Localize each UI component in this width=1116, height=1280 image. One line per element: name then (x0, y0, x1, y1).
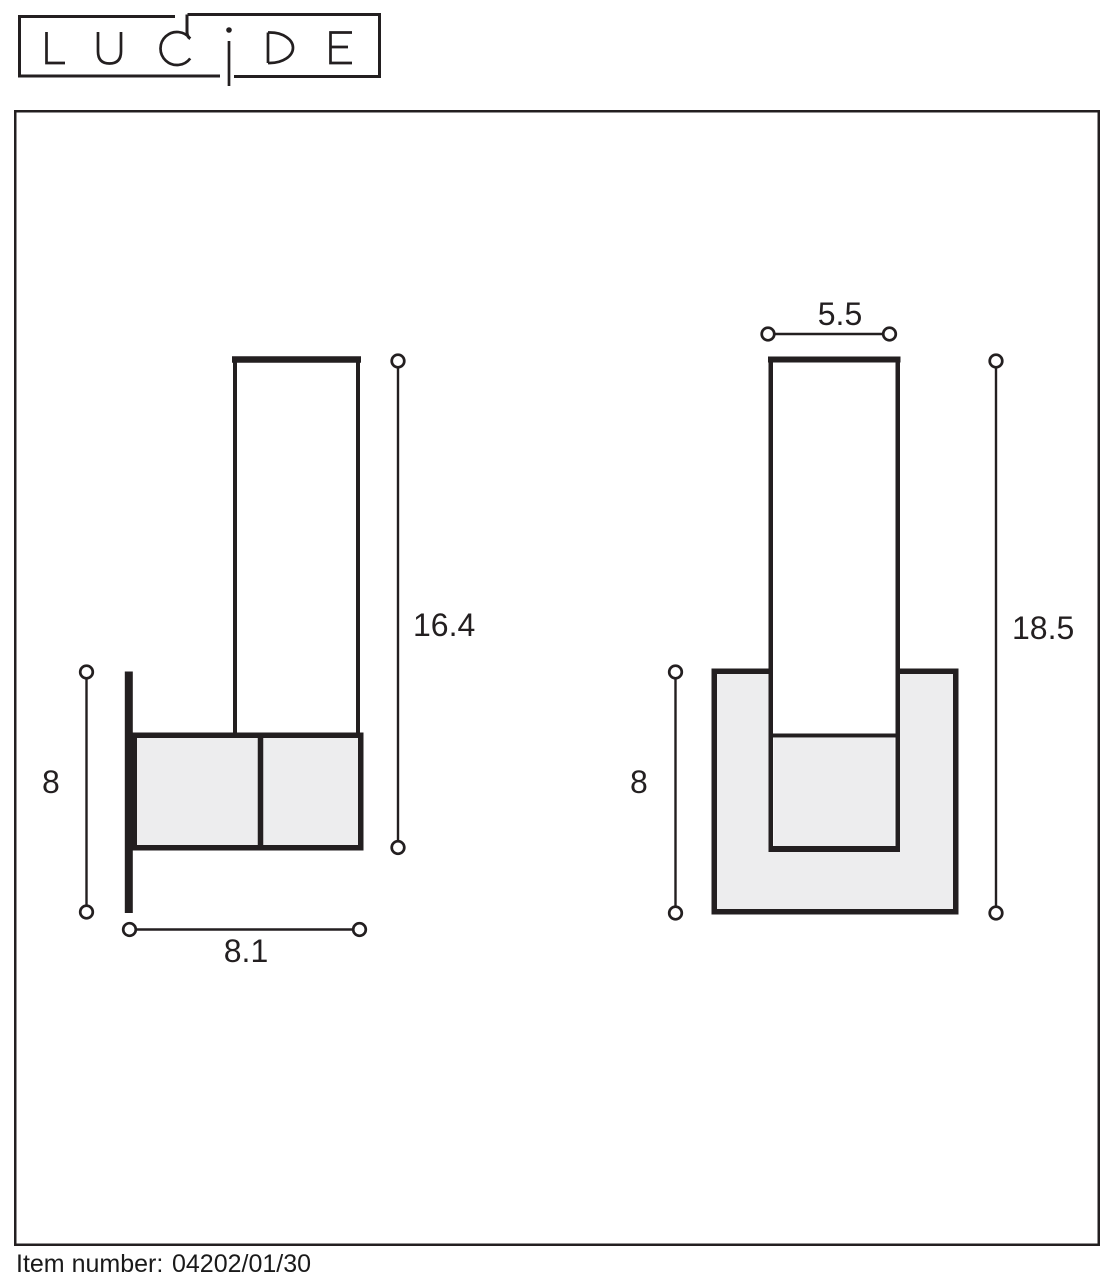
dim-endpoint (883, 328, 896, 341)
side-dim-body-width: 8.1 (123, 923, 366, 969)
dim-label-body-height: 16.4 (413, 607, 475, 643)
dim-endpoint (392, 355, 405, 368)
dim-endpoint (353, 923, 366, 936)
logo-letter-u (98, 32, 121, 64)
logo-letter-i-dot (226, 27, 232, 33)
logo-letter-e (331, 33, 353, 64)
side-body (134, 735, 361, 848)
dim-label-total-height: 18.5 (1012, 610, 1074, 646)
dim-endpoint (80, 906, 93, 919)
logo-frame-right (188, 15, 380, 77)
side-view-figure: 8 16.4 8.1 (42, 355, 475, 969)
dimension-drawing-canvas: 8 16.4 8.1 (0, 0, 1116, 1280)
dim-endpoint (990, 907, 1003, 920)
spec-sheet-page: 8 16.4 8.1 (0, 0, 1116, 1280)
logo-letter-l (47, 32, 66, 63)
dim-endpoint (669, 907, 682, 920)
lucide-logo (20, 15, 380, 87)
front-recess-fill (774, 738, 895, 846)
dim-label-tube-width: 5.5 (818, 296, 862, 332)
dim-endpoint (123, 923, 136, 936)
dim-endpoint (392, 841, 405, 854)
logo-letter-c (161, 32, 191, 65)
dim-label-backplate-height: 8 (630, 764, 648, 800)
side-wall-plate (125, 672, 133, 914)
item-number-label: Item number: (16, 1250, 163, 1278)
item-number-value: 04202/01/30 (172, 1250, 311, 1278)
dim-label-backplate-height: 8 (42, 764, 60, 800)
side-dim-body-height: 16.4 (392, 355, 476, 854)
dim-endpoint (762, 328, 775, 341)
front-view-figure: 5.5 8 18.5 (630, 296, 1074, 919)
front-dim-total-height: 18.5 (990, 355, 1075, 920)
dim-label-body-width: 8.1 (224, 933, 268, 969)
dim-endpoint (990, 355, 1003, 368)
front-dim-tube-width: 5.5 (762, 296, 896, 340)
logo-letter-d (268, 33, 293, 64)
side-dim-backplate-height: 8 (42, 666, 93, 919)
dim-endpoint (669, 666, 682, 679)
front-dim-backplate-height: 8 (630, 666, 682, 920)
footer: Item number: 04202/01/30 (16, 1250, 311, 1278)
side-tube (235, 360, 358, 738)
dim-endpoint (80, 666, 93, 679)
